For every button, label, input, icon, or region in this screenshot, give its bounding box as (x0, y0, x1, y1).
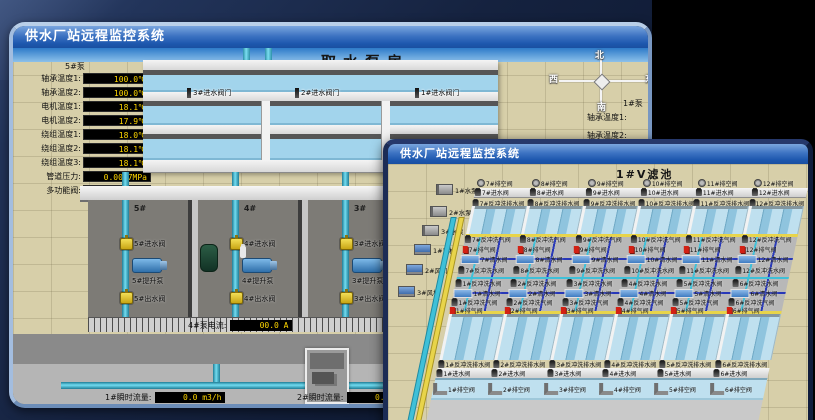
grid-cell: 10#反冲洗气阀 (630, 235, 687, 244)
valve-label: 10#反冲洗水阀 (631, 266, 674, 275)
sensor-label: 轴承温度1: (587, 112, 627, 123)
vent-valve-icon[interactable] (643, 179, 651, 187)
grid-cell: 8#清水阀 (515, 254, 572, 264)
inlet-valve-icon[interactable] (696, 189, 702, 196)
inlet-valve-icon[interactable] (530, 189, 536, 196)
intake-valve-2[interactable]: 2#进水阀门 (295, 88, 339, 98)
bottom-filter-pools (439, 314, 781, 360)
sensor-value: 0.0007MPa (83, 171, 151, 182)
valve-icon (295, 88, 299, 98)
valve-label: 12#排空阀 (763, 179, 794, 188)
valve-label: 8#排空阀 (541, 179, 568, 188)
grid-cell: 5#排气阀 (670, 306, 727, 314)
valve-label: 10#排气阀 (635, 245, 666, 254)
sensor-row: 绕组温度1:18.0℃ (21, 128, 151, 141)
exhaust-valve-icon[interactable] (561, 307, 566, 314)
valve-label: 10#排空阀 (652, 179, 683, 188)
sensor-row: 绕组温度2:18.1℃ (21, 142, 151, 155)
pump-bay-5: 5#5#进水阀5#提升泵5#出水阀 (92, 200, 188, 318)
backwash-water-valve-icon[interactable] (569, 267, 575, 274)
valve-label: 2#进水阀门 (301, 88, 339, 98)
backwash-water-valve-icon[interactable] (566, 280, 572, 287)
grid-cell: 4#反冲洗排水阀 (604, 360, 661, 368)
grid-cell: 4#反冲洗气阀 (617, 298, 674, 306)
backwash-water-valve-icon[interactable] (511, 280, 517, 287)
reading-label: 2#瞬时流量: (297, 392, 344, 403)
filter-pool (743, 206, 804, 234)
outlet-valve-icon[interactable] (340, 292, 353, 304)
inlet-valve-icon[interactable] (641, 189, 647, 196)
valve-label: 9#反冲洗气阀 (583, 235, 622, 244)
grid-cell: 4#进水阀 (601, 368, 658, 378)
valve-label: 3#进水阀 (354, 239, 385, 249)
valve-label: 3#进水阀门 (193, 88, 231, 98)
valve-label: 12#反冲洗气阀 (749, 235, 792, 244)
grid-cell: 2#排气阀 (504, 306, 561, 314)
air-scour-valve-icon[interactable] (507, 299, 513, 306)
grid-cell: 2#反冲洗排水阀 (493, 360, 550, 368)
filter-pool (716, 314, 781, 360)
clean-water-box-icon[interactable] (509, 289, 528, 298)
vent-valve-icon[interactable] (588, 179, 596, 187)
pump-icon (430, 206, 447, 217)
valve-label: 12#进水阀 (759, 188, 790, 197)
sensor-value: 100.0℃ (83, 73, 151, 84)
exhaust-valve-icon[interactable] (629, 246, 634, 253)
grid-cell: 2#清水阀 (508, 289, 565, 298)
filter-pool (550, 314, 615, 360)
grid-cell: 3#排空阀 (542, 380, 601, 398)
filter-pool (521, 206, 582, 234)
inlet-valve-icon[interactable] (603, 370, 609, 377)
air-scour-valve-icon[interactable] (452, 299, 458, 306)
intake-valve-1[interactable]: 1#进水阀门 (415, 88, 459, 98)
backwash-water-valve-icon[interactable] (624, 267, 630, 274)
sensor-value: 100.0℃ (83, 87, 151, 98)
machine-pump[interactable]: 2#水泵 (430, 206, 472, 217)
grid-cell: 2#进水阀 (491, 368, 548, 378)
valve-label: 11#反冲洗水阀 (687, 266, 730, 275)
exhaust-valve-icon[interactable] (727, 307, 732, 314)
exhaust-valve-icon[interactable] (573, 246, 578, 253)
blower-icon (414, 244, 431, 255)
grid-cell: 6#反冲洗气阀 (727, 298, 784, 306)
inlet-valve-icon[interactable] (475, 189, 481, 196)
row-backwash-water-bottom: 1#反冲洗水阀2#反冲洗水阀3#反冲洗水阀4#反冲洗水阀5#反冲洗水阀6#反冲洗… (455, 279, 789, 288)
grid-cell: 12#反冲洗水阀 (734, 266, 791, 275)
operator-figure (240, 246, 246, 258)
machine-label: 2#水泵 (449, 207, 472, 217)
valve-label: 5#进水阀 (134, 239, 165, 249)
blower-icon (398, 286, 415, 297)
grid-cell: 9#进水阀 (585, 188, 642, 197)
flowmeter-icon (312, 372, 334, 384)
row-clean-water-bottom: 1#清水阀2#清水阀3#清水阀4#清水阀5#清水阀6#清水阀 (452, 289, 786, 298)
grid-cell: 3#清水阀 (563, 289, 620, 298)
filter-pool (687, 206, 748, 234)
filter-scene: 1#V滤池 1#水泵2#水泵3#水泵1#风机2#风机3#风机 7#排空阀8#排空… (388, 164, 808, 420)
row-exhaust-top: 7#排气阀8#排气阀9#排气阀10#排气阀11#排气阀12#排气阀 (462, 245, 796, 254)
valve-label: 8#清水阀 (536, 255, 563, 264)
valve-label: 8#反冲洗气阀 (527, 235, 566, 244)
backwash-water-valve-icon[interactable] (622, 280, 628, 287)
backwash-water-valve-icon[interactable] (680, 267, 686, 274)
grid-cell: 4#排气阀 (615, 306, 672, 314)
desktop: 供水厂站远程监控系统 取水泵房 5#泵 轴承温度1:100.0℃轴承温度2:10… (0, 0, 815, 420)
row-air-scour-bottom: 1#反冲洗气阀2#反冲洗气阀3#反冲洗气阀4#反冲洗气阀5#反冲洗气阀6#反冲洗… (451, 298, 785, 306)
air-scour-valve-icon[interactable] (686, 236, 692, 243)
top-filter-pools (466, 206, 804, 234)
outlet-valve-icon[interactable] (120, 292, 133, 304)
inlet-valve-icon[interactable] (547, 370, 553, 377)
backwash-drain-valve-icon[interactable] (660, 361, 666, 368)
exhaust-valve-icon[interactable] (671, 307, 676, 314)
grid-cell: 10#排空阀 (642, 178, 699, 188)
vent-valve-icon[interactable] (754, 179, 762, 187)
pool-lane (143, 101, 498, 125)
blower-icon (406, 264, 423, 275)
grid-cell: 5#反冲洗排水阀 (659, 360, 716, 368)
valve-label: 7#清水阀 (481, 255, 508, 264)
grid-cell: 7#进水阀 (474, 188, 531, 197)
reading-label: 4#泵电流: (188, 320, 227, 331)
filter-pool (632, 206, 693, 234)
grid-cell: 7#反冲洗水阀 (457, 266, 514, 275)
reading-value: 0.0 m3/h (155, 392, 225, 403)
grid-cell: 6#清水阀 (729, 289, 786, 298)
valve-label: 8#进水阀 (537, 188, 564, 197)
clean-water-box-icon[interactable] (675, 289, 694, 298)
clean-water-box-icon[interactable] (619, 289, 638, 298)
valve-label: 10#反冲洗气阀 (638, 235, 681, 244)
grid-cell: 5#排空阀 (653, 380, 712, 398)
valve-label: 6#排空阀 (725, 385, 752, 394)
valve-label: 6#清水阀 (750, 289, 777, 298)
grid-cell: 1#反冲洗气阀 (451, 298, 508, 306)
clean-water-box-icon[interactable] (453, 289, 472, 298)
valve-label: 7#进水阀 (482, 188, 509, 197)
valve-label: 10#进水阀 (648, 188, 679, 197)
valve-label: 11#清水阀 (702, 255, 733, 264)
inlet-valve-icon[interactable] (713, 370, 719, 377)
valve-label: 1#反冲洗水阀 (463, 279, 502, 288)
grid-cell: 6#排气阀 (726, 306, 783, 314)
exhaust-valve-icon[interactable] (450, 307, 455, 314)
flowmeter-panel (310, 353, 344, 369)
air-scour-valve-icon[interactable] (673, 299, 679, 306)
valve-label: 9#进水阀 (593, 188, 620, 197)
compass-rose-icon (594, 74, 611, 91)
machine-pump[interactable]: 1#水泵 (436, 184, 478, 195)
valve-label: 9#清水阀 (591, 255, 618, 264)
compass-west: 西 (549, 72, 558, 85)
grid-cell: 9#反冲洗水阀 (568, 266, 625, 275)
valve-label: 4#清水阀 (639, 289, 666, 298)
valve-label: 3#反冲洗水阀 (573, 279, 612, 288)
air-scour-valve-icon[interactable] (520, 236, 526, 243)
exhaust-valve-icon[interactable] (739, 246, 744, 253)
pump-label: 5#提升泵 (132, 276, 163, 286)
sensor-label: 轴承温度1: (21, 73, 81, 84)
pump-icon[interactable] (242, 258, 272, 273)
backwash-water-valve-icon[interactable] (456, 280, 462, 287)
compass-north: 北 (595, 48, 604, 61)
grid-cell: 12#排空阀 (753, 178, 808, 188)
machine-blower[interactable]: 3#风机 (398, 286, 440, 297)
window-v-filter: 供水厂站远程监控系统 1#V滤池 1#水泵2#水泵3#水泵1#风机2#风机3#风… (383, 139, 813, 420)
air-scour-valve-icon[interactable] (576, 236, 582, 243)
row-bottom-vent-valves: 1#排空阀2#排空阀3#排空阀4#排空阀5#排空阀6#排空阀 (431, 380, 767, 398)
valve-label: 2#排空阀 (503, 385, 530, 394)
pump5-sensor-panel: 轴承温度1:100.0℃轴承温度2:100.0℃电机温度1:18.1℃电机温度2… (21, 72, 161, 202)
clean-water-box-icon[interactable] (682, 255, 701, 264)
grid-cell: 5#清水阀 (674, 289, 731, 298)
sensor-label: 多功能阀: (21, 185, 81, 196)
pump4-current: 4#泵电流: 00.0 A (188, 320, 292, 331)
grid-cell: 1#排空阀 (431, 380, 490, 398)
exhaust-valve-icon[interactable] (505, 307, 510, 314)
sensor-label: 电机温度2: (21, 115, 81, 126)
pump-icon[interactable] (132, 258, 162, 273)
vent-valve-icon[interactable] (477, 179, 485, 187)
grid-cell: 11#排气阀 (683, 245, 740, 254)
valve-label: 11#排气阀 (690, 245, 721, 254)
valve-label: 12#排气阀 (745, 245, 776, 254)
grid-cell: 1#排气阀 (449, 306, 506, 314)
grid-cell: 12#反冲洗气阀 (741, 235, 798, 244)
backwash-drain-valve-icon[interactable] (549, 361, 555, 368)
grid-cell: 9#排气阀 (573, 245, 630, 254)
pump-icon (422, 225, 439, 236)
sensor-label: 管道压力: (21, 171, 81, 182)
valve-label: 4#反冲洗水阀 (629, 279, 668, 288)
grid-cell: 8#排气阀 (517, 245, 574, 254)
filter-pool (577, 206, 638, 234)
inlet-valve-icon[interactable] (340, 238, 353, 250)
grid-cell: 10#反冲洗水阀 (623, 266, 680, 275)
backwash-drain-valve-icon[interactable] (604, 361, 610, 368)
valve-label: 1#清水阀 (473, 289, 500, 298)
pool-divider (261, 101, 270, 160)
drain-elbow-icon[interactable] (654, 383, 668, 395)
row-top-inlet-valves: 7#进水阀8#进水阀9#进水阀10#进水阀11#进水阀12#进水阀 (474, 188, 808, 197)
air-scour-valve-icon[interactable] (631, 236, 637, 243)
reading-label: 1#瞬时流量: (105, 392, 152, 403)
sensor-label: 绕组温度2: (21, 143, 81, 154)
clean-water-box-icon[interactable] (564, 289, 583, 298)
outlet-valve-icon[interactable] (230, 292, 243, 304)
air-scour-valve-icon[interactable] (465, 236, 471, 243)
inlet-valve-icon[interactable] (752, 189, 758, 196)
grid-cell: 9#排空阀 (587, 178, 644, 188)
valve-icon (415, 88, 419, 98)
valve-label: 2#反冲洗水阀 (518, 279, 557, 288)
valve-label: 9#反冲洗水阀 (576, 266, 615, 275)
grid-cell: 2#反冲洗气阀 (506, 298, 563, 306)
grid-cell: 1#进水阀 (435, 368, 492, 378)
grid-cell: 1#清水阀 (452, 289, 509, 298)
back-window-titlebar[interactable]: 供水厂站远程监控系统 (13, 26, 648, 48)
grid-cell: 3#进水阀 (546, 368, 603, 378)
grid-cell: 7#排空阀 (476, 178, 533, 188)
drain-elbow-icon[interactable] (433, 383, 447, 395)
grid-cell: 6#排空阀 (708, 380, 767, 398)
sensor-value: 18.1℃ (83, 143, 151, 154)
backwash-water-valve-icon[interactable] (735, 267, 741, 274)
inlet-valve-icon[interactable] (120, 238, 133, 250)
valve-label: 9#排空阀 (597, 179, 624, 188)
drain-elbow-icon[interactable] (488, 383, 502, 395)
sensor-value: 18.1℃ (83, 101, 151, 112)
pump-label: 4#提升泵 (242, 276, 273, 286)
sensor-value: 17.9℃ (83, 115, 151, 126)
flow-reading-1: 1#瞬时流量: 0.0 m3/h (105, 392, 225, 403)
grid-cell: 1#反冲洗排水阀 (438, 360, 495, 368)
valve-label: 4#排空阀 (614, 385, 641, 394)
inlet-valve-icon[interactable] (586, 189, 592, 196)
air-scour-valve-icon[interactable] (742, 236, 748, 243)
vent-valve-icon[interactable] (698, 179, 706, 187)
valve-label: 1#进水阀 (444, 369, 471, 378)
drain-elbow-icon[interactable] (544, 383, 558, 395)
bay-number: 4# (202, 204, 298, 213)
inlet-valve-icon[interactable] (437, 370, 443, 377)
backwash-water-valve-icon[interactable] (514, 267, 520, 274)
pump1-panel-header: 1#泵 (623, 98, 643, 109)
pump-icon[interactable] (352, 258, 382, 273)
exhaust-valve-icon[interactable] (518, 246, 523, 253)
grid-cell: 11#进水阀 (695, 188, 752, 197)
backwash-drain-valve-icon[interactable] (494, 361, 500, 368)
grid-cell: 6#进水阀 (712, 368, 769, 378)
front-window-titlebar[interactable]: 供水厂站远程监控系统 (388, 144, 808, 164)
grid-cell: 3#反冲洗气阀 (561, 298, 618, 306)
grid-cell: 6#反冲洗水阀 (731, 279, 788, 288)
valve-label: 6#反冲洗水阀 (739, 279, 778, 288)
exhaust-valve-icon[interactable] (463, 246, 468, 253)
valve-label: 7#反冲洗水阀 (465, 266, 504, 275)
grid-cell: 7#排气阀 (462, 245, 519, 254)
sensor-row: 轴承温度2:100.0℃ (21, 86, 151, 99)
backwash-water-valve-icon[interactable] (458, 267, 464, 274)
grid-cell: 10#清水阀 (626, 254, 683, 264)
valve-label: 5#出水阀 (134, 294, 165, 304)
valve-label: 11#反冲洗气阀 (693, 235, 736, 244)
valve-label: 3#清水阀 (584, 289, 611, 298)
grid-cell: 3#反冲洗排水阀 (548, 360, 605, 368)
clean-water-box-icon[interactable] (516, 255, 535, 264)
grid-cell: 6#反冲洗排水阀 (714, 360, 771, 368)
clean-water-box-icon[interactable] (730, 289, 749, 298)
valve-label: 11#排空阀 (707, 179, 738, 188)
valve-icon (187, 88, 191, 98)
row-clean-water-top: 7#清水阀8#清水阀9#清水阀10#清水阀11#清水阀12#清水阀 (460, 254, 794, 264)
grid-cell: 5#进水阀 (657, 368, 714, 378)
intake-valve-3[interactable]: 3#进水阀门 (187, 88, 231, 98)
air-scour-valve-icon[interactable] (562, 299, 568, 306)
backwash-water-valve-icon[interactable] (677, 280, 683, 287)
filter-grid: 7#排空阀8#排空阀9#排空阀10#排空阀11#排空阀12#排空阀 7#进水阀8… (423, 178, 808, 420)
clean-water-box-icon[interactable] (627, 255, 646, 264)
clean-water-box-icon[interactable] (737, 255, 756, 264)
sensor-label: 轴承温度2: (21, 87, 81, 98)
bay-number: 5# (92, 204, 188, 213)
grid-cell: 7#反冲洗气阀 (464, 235, 521, 244)
drain-elbow-icon[interactable] (710, 383, 724, 395)
sensor-row: 管道压力:0.0007MPa (21, 170, 151, 183)
sensor-row: 绕组温度3:18.1℃ (21, 156, 151, 169)
valve-label: 7#反冲洗气阀 (472, 235, 511, 244)
sensor-label: 绕组温度1: (21, 129, 81, 140)
air-scour-valve-icon[interactable] (618, 299, 624, 306)
valve-label: 12#反冲洗水阀 (742, 266, 785, 275)
valve-label: 2#清水阀 (529, 289, 556, 298)
row-bottom-inlet-valves: 1#进水阀2#进水阀3#进水阀4#进水阀5#进水阀6#进水阀 (435, 368, 769, 378)
grid-cell: 8#反冲洗水阀 (513, 266, 570, 275)
valve-label: 5#反冲洗水阀 (684, 279, 723, 288)
grid-cell: 4#清水阀 (618, 289, 675, 298)
valve-label: 4#出水阀 (244, 294, 275, 304)
grid-cell: 12#清水阀 (736, 254, 793, 264)
valve-label: 7#排气阀 (469, 245, 496, 254)
row-air-scour-top: 7#反冲洗气阀8#反冲洗气阀9#反冲洗气阀10#反冲洗气阀11#反冲洗气阀12#… (464, 235, 798, 244)
sensor-row: 电机温度1:18.1℃ (21, 100, 151, 113)
valve-label: 3#出水阀 (354, 294, 385, 304)
clean-water-box-icon[interactable] (461, 255, 480, 264)
grid-cell: 8#进水阀 (529, 188, 586, 197)
filter-pool (605, 314, 670, 360)
sensor-value: 18.1℃ (83, 157, 151, 168)
clean-water-box-icon[interactable] (571, 255, 590, 264)
grid-cell: 4#排空阀 (597, 380, 656, 398)
grid-cell: 9#清水阀 (570, 254, 627, 264)
row-backwash-water-top: 7#反冲洗水阀8#反冲洗水阀9#反冲洗水阀10#反冲洗水阀11#反冲洗水阀12#… (457, 266, 791, 275)
vent-valve-icon[interactable] (532, 179, 540, 187)
sensor-value: 18.0℃ (83, 129, 151, 140)
valve-label: 10#清水阀 (647, 255, 678, 264)
backwash-water-valve-icon[interactable] (732, 280, 738, 287)
exhaust-valve-icon[interactable] (684, 246, 689, 253)
exhaust-valve-icon[interactable] (616, 307, 621, 314)
grid-cell: 7#清水阀 (460, 254, 517, 264)
valve-label: 8#排气阀 (524, 245, 551, 254)
grid-cell: 3#反冲洗水阀 (565, 279, 622, 288)
valve-label: 8#反冲洗水阀 (521, 266, 560, 275)
filter-pool (661, 314, 726, 360)
pipe (213, 364, 220, 384)
valve-label: 5#清水阀 (695, 289, 722, 298)
grid-cell: 2#排空阀 (487, 380, 546, 398)
sensor-label: 电机温度1: (21, 101, 81, 112)
backwash-drain-valve-icon[interactable] (438, 361, 444, 368)
grid-cell: 9#反冲洗气阀 (575, 235, 632, 244)
inlet-valve-icon[interactable] (658, 370, 664, 377)
valve-label: 3#进水阀 (554, 369, 581, 378)
drain-elbow-icon[interactable] (599, 383, 613, 395)
sensor-label: 绕组温度3: (21, 157, 81, 168)
row-bottom-backwash-drain: 1#反冲洗排水阀2#反冲洗排水阀3#反冲洗排水阀4#反冲洗排水阀5#反冲洗排水阀… (438, 360, 772, 368)
filter-pool (495, 314, 560, 360)
bottom-walkway (422, 400, 763, 420)
backwash-drain-valve-icon[interactable] (715, 361, 721, 368)
sensor-row: 电机温度2:17.9℃ (21, 114, 151, 127)
inlet-valve-icon[interactable] (492, 370, 498, 377)
valve-label: 12#清水阀 (757, 255, 788, 264)
tank-icon (200, 244, 218, 272)
air-scour-valve-icon[interactable] (728, 299, 734, 306)
grid-cell: 8#反冲洗气阀 (519, 235, 576, 244)
grid-cell: 5#反冲洗水阀 (676, 279, 733, 288)
